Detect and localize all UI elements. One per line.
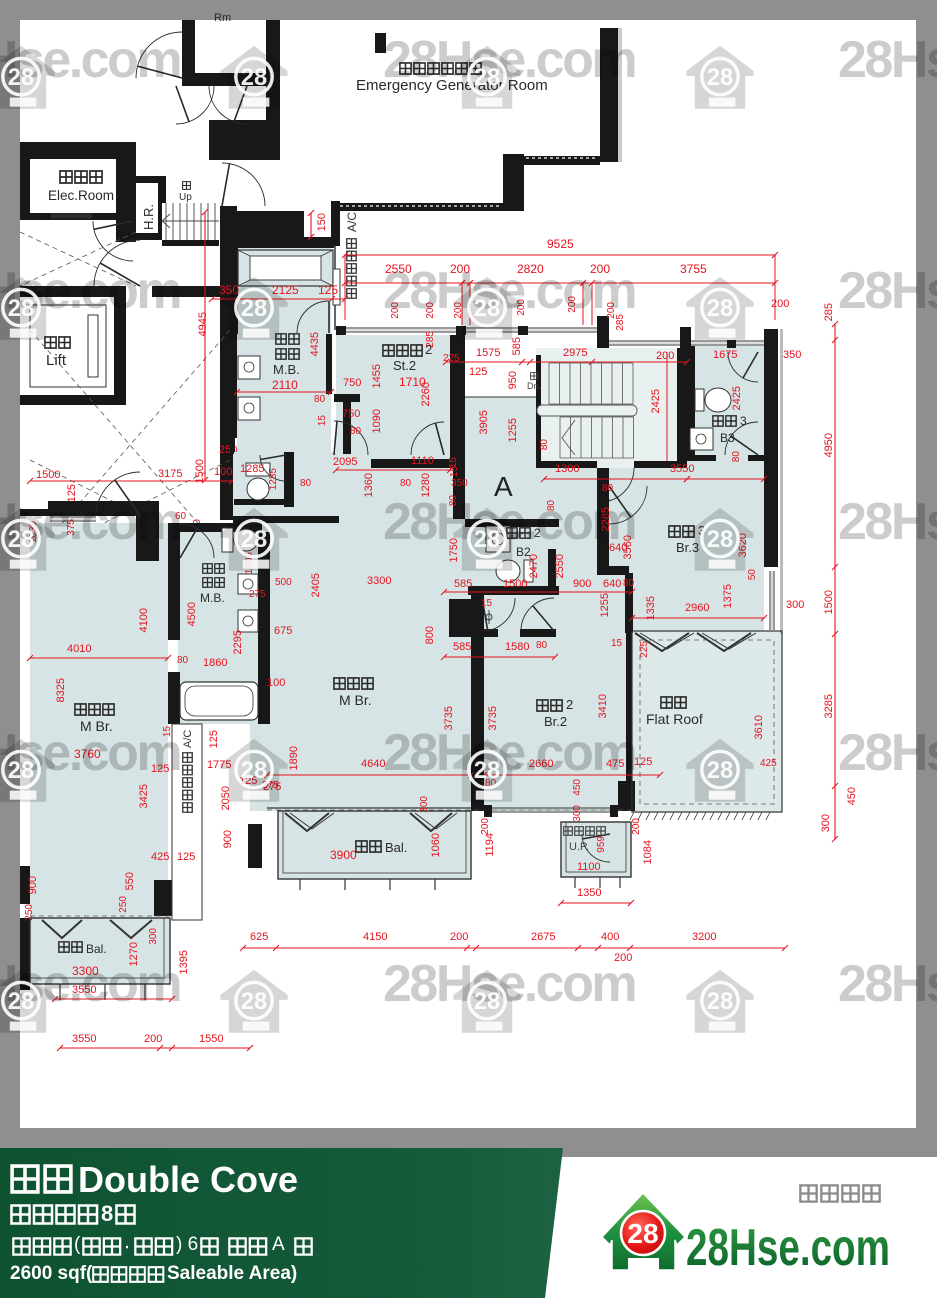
svg-text:125: 125 [208,730,220,748]
svg-text:A: A [272,1234,285,1255]
svg-text:1285: 1285 [240,463,264,475]
svg-text:3200: 3200 [692,931,716,943]
svg-text:585: 585 [453,641,471,653]
svg-text:200: 200 [771,298,789,310]
svg-text:900: 900 [573,578,591,590]
svg-text:250: 250 [24,904,35,921]
svg-text:2975: 2975 [563,347,587,359]
svg-text:1350: 1350 [577,887,601,899]
svg-text:1100: 1100 [577,861,601,873]
svg-text:80: 80 [731,451,742,463]
svg-text:1575: 1575 [476,347,500,359]
svg-text:Double Cove: Double Cove [78,1159,298,1200]
svg-text:80: 80 [539,439,550,451]
svg-text:200: 200 [450,931,468,943]
svg-text:450: 450 [846,787,858,805]
svg-text:50: 50 [747,569,758,581]
svg-text:1375: 1375 [722,584,734,608]
svg-text:350: 350 [451,478,468,489]
svg-text:900: 900 [222,830,234,848]
svg-text:300: 300 [419,796,430,813]
svg-text:2110: 2110 [272,378,298,392]
svg-text:3425: 3425 [138,784,150,808]
svg-text:1110: 1110 [411,455,434,467]
svg-text:1500: 1500 [36,469,60,481]
svg-text:4010: 4010 [67,643,91,655]
svg-text:2095: 2095 [333,456,357,468]
svg-text:2960: 2960 [685,602,709,614]
svg-text:1675: 1675 [713,349,737,361]
svg-text:3610: 3610 [753,715,765,739]
svg-text:100: 100 [267,677,285,689]
svg-text:1084: 1084 [642,840,654,864]
svg-text:640: 640 [603,578,621,590]
svg-text:625: 625 [250,931,268,943]
svg-text:(: ( [74,1234,81,1255]
svg-text:1090: 1090 [371,409,383,433]
svg-text:300: 300 [572,805,583,822]
svg-text:675: 675 [274,625,292,637]
svg-text:4150: 4150 [363,931,387,943]
svg-text:3: 3 [740,414,747,428]
svg-text:4640: 4640 [361,758,385,770]
svg-text:1335: 1335 [645,596,657,620]
svg-text:1500: 1500 [823,590,835,614]
svg-text:1500: 1500 [503,578,527,590]
svg-text:200: 200 [480,818,491,835]
svg-text:900: 900 [27,876,39,894]
svg-text:80: 80 [177,655,189,666]
svg-text:80: 80 [536,640,548,651]
svg-text:1060: 1060 [430,833,442,857]
svg-text:200: 200 [631,818,642,835]
svg-text:Dn.: Dn. [527,381,541,391]
svg-text:8325: 8325 [55,678,67,702]
svg-text:750: 750 [342,408,360,420]
svg-text:2550: 2550 [554,554,566,578]
svg-text:500: 500 [275,577,292,588]
svg-text:2675: 2675 [531,931,555,943]
svg-text:Bal.: Bal. [385,840,407,855]
svg-text:3550: 3550 [72,1033,96,1045]
svg-text:St.2: St.2 [393,358,416,373]
svg-text:2600 sqf(: 2600 sqf( [10,1263,93,1284]
svg-text:3900: 3900 [330,848,357,862]
svg-text:275: 275 [249,589,266,600]
svg-text:9525: 9525 [547,237,574,251]
svg-text:425: 425 [760,758,777,769]
svg-text:585: 585 [511,337,523,355]
svg-text:4950: 4950 [823,433,835,457]
svg-text:2405: 2405 [310,573,322,597]
svg-text:1580: 1580 [505,641,529,653]
svg-text:2: 2 [566,697,573,712]
svg-text:350: 350 [783,349,801,361]
svg-text:Bal.: Bal. [86,942,107,956]
svg-text:U.P.: U.P. [569,841,589,853]
svg-text:300: 300 [148,928,159,945]
svg-text:80: 80 [314,394,326,405]
svg-text:Rm: Rm [214,12,231,24]
svg-text:300: 300 [786,599,804,611]
svg-text:15: 15 [317,415,328,427]
svg-text:125: 125 [634,756,652,768]
svg-text:2425: 2425 [731,386,743,410]
svg-text:28: 28 [627,1218,658,1249]
svg-text:Saleable Area): Saleable Area) [167,1263,297,1284]
svg-text:285: 285 [425,331,436,348]
svg-text:28Hse.com: 28Hse.com [838,493,937,551]
svg-text:1194: 1194 [484,833,496,857]
svg-text:80: 80 [400,478,412,489]
svg-text:225: 225 [639,641,650,658]
svg-text:1890: 1890 [288,746,300,770]
svg-text:200: 200 [656,350,674,362]
svg-text:80: 80 [623,578,635,589]
svg-text:H.R.: H.R. [141,204,156,230]
svg-text:200: 200 [144,1033,162,1045]
svg-text:3285: 3285 [823,694,835,718]
svg-text:585: 585 [454,578,472,590]
svg-text:4945: 4945 [197,312,209,336]
svg-text:28Hse.com: 28Hse.com [838,955,937,1013]
svg-text:950: 950 [507,371,519,389]
svg-text:425: 425 [151,851,169,863]
svg-text:400: 400 [601,931,619,943]
svg-text:Up: Up [179,192,192,203]
svg-text:80: 80 [300,478,312,489]
svg-text:800: 800 [424,626,436,644]
svg-text:1455: 1455 [371,364,383,388]
svg-text:‧: ‧ [124,1238,130,1259]
svg-text:15: 15 [611,638,623,649]
svg-text:B3: B3 [720,431,735,445]
svg-text:125: 125 [177,851,195,863]
svg-text:28Hse.com: 28Hse.com [838,724,937,782]
svg-text:28Hse.com: 28Hse.com [686,1219,890,1277]
svg-text:3755: 3755 [680,262,707,276]
svg-text:2295: 2295 [232,630,244,654]
svg-text:1300: 1300 [555,463,579,475]
svg-text:1255: 1255 [599,593,611,617]
svg-text:) 6: ) 6 [176,1234,198,1255]
svg-text:28Hse.com: 28Hse.com [838,262,937,320]
svg-text:2425: 2425 [650,389,662,413]
svg-text:2260: 2260 [420,382,432,406]
svg-text:80: 80 [350,426,362,437]
svg-text:M.B.: M.B. [273,362,300,377]
svg-text:1550: 1550 [199,1033,223,1045]
svg-text:300: 300 [820,814,832,832]
svg-text:550: 550 [124,872,136,890]
svg-text:125: 125 [469,366,487,378]
svg-text:3550: 3550 [670,463,694,475]
svg-text:1285: 1285 [268,468,279,491]
svg-text:28Hse.com: 28Hse.com [838,31,937,89]
svg-text:A/C: A/C [345,212,359,232]
svg-text:3300: 3300 [367,575,391,587]
svg-text:1360: 1360 [363,473,375,497]
svg-text:Flat Roof: Flat Roof [646,711,703,727]
svg-text:959: 959 [596,836,607,853]
svg-text:1255: 1255 [507,418,519,442]
svg-text:8: 8 [101,1201,113,1226]
svg-text:100: 100 [214,466,232,478]
svg-text:1860: 1860 [203,657,227,669]
svg-text:15: 15 [448,457,459,469]
svg-text:3175: 3175 [158,468,182,480]
svg-text:2470: 2470 [528,554,540,578]
svg-text:1500: 1500 [194,459,206,483]
svg-text:M Br.: M Br. [339,692,372,708]
svg-text:M.B.: M.B. [200,591,225,605]
svg-text:Elec.Room: Elec.Room [48,188,114,203]
svg-text:150: 150 [316,213,328,231]
svg-text:285: 285 [823,303,835,321]
svg-text:A/C: A/C [182,730,194,748]
svg-text:3905: 3905 [478,410,490,434]
svg-text:4100: 4100 [138,608,150,632]
svg-text:15: 15 [481,598,493,609]
svg-text:125: 125 [318,283,338,297]
svg-text:4500: 4500 [186,602,198,626]
svg-text:750: 750 [343,377,361,389]
svg-text:3410: 3410 [597,694,609,718]
svg-text:4435: 4435 [309,332,321,356]
svg-text:250: 250 [118,896,129,913]
